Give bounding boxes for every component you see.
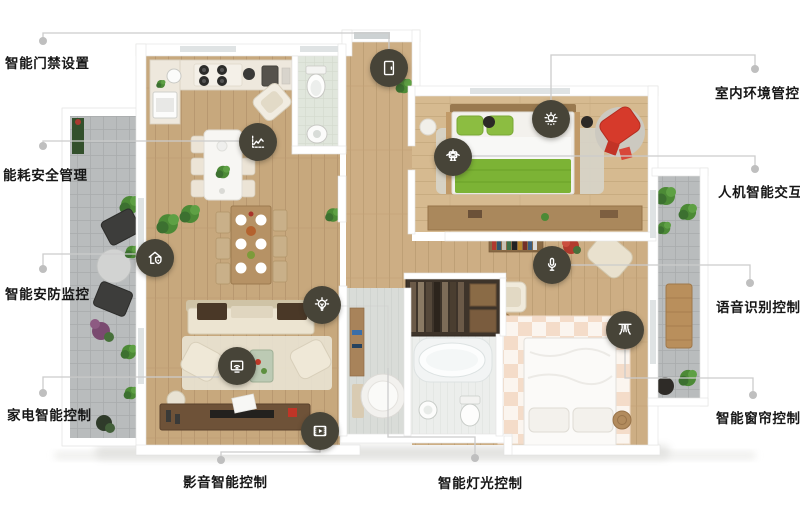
wardrobe-closet [406, 278, 502, 336]
robot-icon[interactable] [434, 138, 472, 176]
feature-label-energy: 能耗安全管理 [3, 164, 88, 184]
infographic-stage: 智能门禁设置 能耗安全管理 智能安防监控 家电智能控制 影音智能控制 智能灯光控… [0, 0, 800, 511]
door-lock-icon[interactable] [370, 49, 408, 87]
curtain-icon[interactable] [606, 311, 644, 349]
feature-label-security: 智能安防监控 [5, 283, 90, 303]
microphone-icon[interactable] [533, 246, 571, 284]
feature-label-interaction: 人机智能交互 [718, 181, 800, 201]
feature-label-voice: 语音识别控制 [716, 296, 800, 316]
feature-label-media: 影音智能控制 [183, 471, 268, 491]
house-shield-icon[interactable] [136, 239, 174, 277]
tv-wifi-icon[interactable] [218, 347, 256, 385]
film-media-icon[interactable] [301, 412, 339, 450]
feature-label-door-access: 智能门禁设置 [5, 52, 90, 72]
light-bulb-icon[interactable] [303, 286, 341, 324]
feature-label-curtain: 智能窗帘控制 [716, 407, 800, 427]
feature-label-lighting: 智能灯光控制 [438, 472, 523, 492]
feature-label-environment: 室内环境管控 [715, 82, 800, 102]
energy-chart-icon[interactable] [239, 123, 277, 161]
left-terrace [62, 108, 146, 446]
sun-air-icon[interactable] [532, 100, 570, 138]
feature-label-appliance: 家电智能控制 [7, 404, 92, 424]
